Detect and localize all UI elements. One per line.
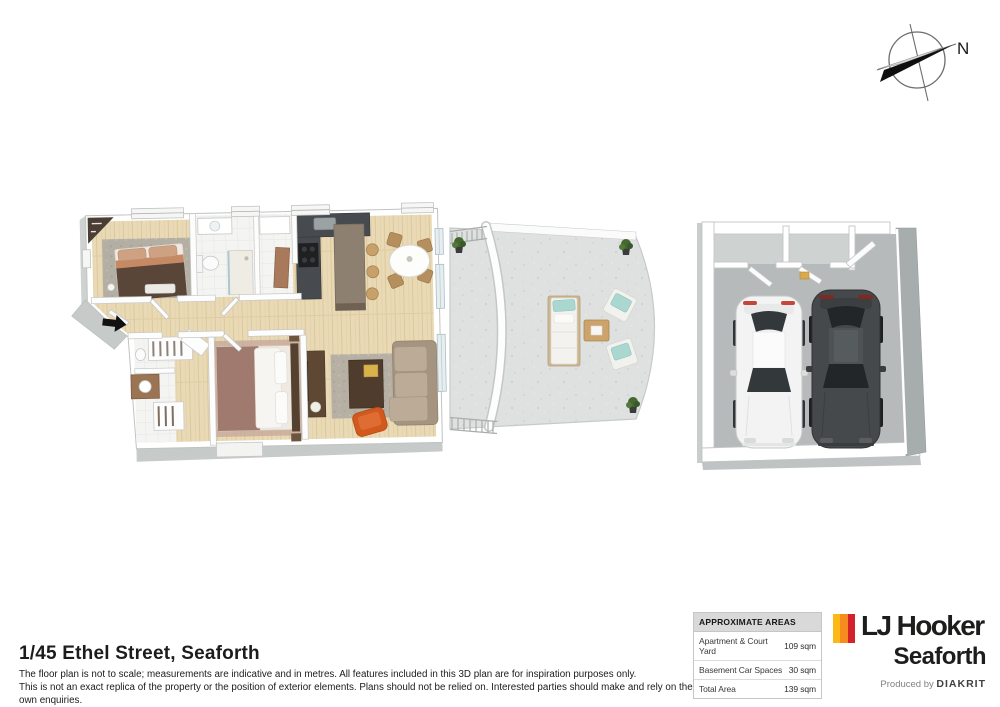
bar-stool: [367, 266, 379, 278]
laundry-toilet: [135, 349, 145, 361]
car-dark: [806, 290, 886, 448]
floorplan-page: N 1/45 Ethel Street, Seaforth The floor …: [0, 0, 1000, 707]
area-value: 109 sqm: [780, 641, 816, 651]
area-row-apartment: Apartment & Court Yard 109 sqm: [694, 632, 821, 661]
outdoor-coffee-table: [584, 320, 609, 341]
brand-stripes: [833, 614, 855, 643]
laundry-cabinet: [260, 217, 290, 235]
disclaimer-line-1: The floor plan is not to scale; measurem…: [19, 669, 709, 682]
areas-table-header: APPROXIMATE AREAS: [694, 613, 821, 632]
sofa: [388, 340, 438, 425]
garage: [697, 222, 926, 470]
compass-label: N: [957, 39, 969, 58]
area-label: Basement Car Spaces: [699, 665, 782, 675]
area-row-carspaces: Basement Car Spaces 30 sqm: [694, 661, 821, 680]
master-bedroom: [212, 333, 304, 443]
page-title: 1/45 Ethel Street, Seaforth: [19, 643, 260, 665]
disclaimer: The floor plan is not to scale; measurem…: [19, 669, 709, 707]
bathroom-basin: [210, 221, 220, 231]
brand-office: Seaforth: [833, 644, 986, 669]
storage-box: [800, 272, 809, 279]
window-planter: [216, 442, 262, 457]
stripe-orange: [840, 614, 847, 643]
master-bed-blanket: [216, 346, 260, 431]
shower-glass: [228, 251, 229, 295]
produced-by: Produced by DIAKRIT: [833, 678, 986, 690]
brand-logo: LJ Hooker Seaforth Produced by DIAKRIT: [833, 611, 986, 690]
floorplan-scene: N: [0, 0, 1000, 707]
cooktop: [298, 243, 318, 267]
nightstand: [291, 433, 301, 441]
outdoor-sofa: [548, 296, 580, 366]
toilet-tank: [196, 255, 202, 272]
courtyard: [450, 223, 655, 434]
kitchen-island: [334, 224, 366, 311]
area-value: 139 sqm: [780, 684, 816, 694]
stripe-red: [848, 614, 855, 643]
apartment: [69, 202, 447, 463]
laundry-basin: [139, 380, 151, 392]
compass-icon: [877, 24, 956, 101]
produced-by-label: Produced by: [880, 679, 933, 690]
area-row-total: Total Area 139 sqm: [694, 680, 821, 698]
window: [82, 250, 90, 268]
leaning-mirror: [274, 247, 290, 288]
kitchen-sink: [314, 218, 336, 230]
areas-table: APPROXIMATE AREAS Apartment & Court Yard…: [693, 612, 822, 699]
flower-pot: [311, 402, 321, 412]
bar-stool: [366, 244, 378, 256]
stripe-yellow: [833, 614, 840, 643]
area-label: Apartment & Court Yard: [699, 636, 780, 656]
brand-name: LJ Hooker: [861, 611, 984, 641]
bedroom2-bench: [145, 284, 175, 294]
car-white: [730, 296, 808, 448]
toilet-bowl: [202, 256, 218, 270]
shower: [228, 250, 253, 294]
bar-stool: [366, 288, 378, 300]
bedroom2-lamp: [107, 284, 114, 291]
producer-name: DIAKRIT: [936, 678, 986, 690]
master-pillow: [275, 392, 288, 424]
area-value: 30 sqm: [785, 665, 816, 675]
coffee-table-book: [364, 365, 378, 377]
area-label: Total Area: [699, 684, 736, 694]
disclaimer-line-2: This is not an exact replica of the prop…: [19, 682, 709, 707]
master-pillow: [274, 352, 287, 384]
